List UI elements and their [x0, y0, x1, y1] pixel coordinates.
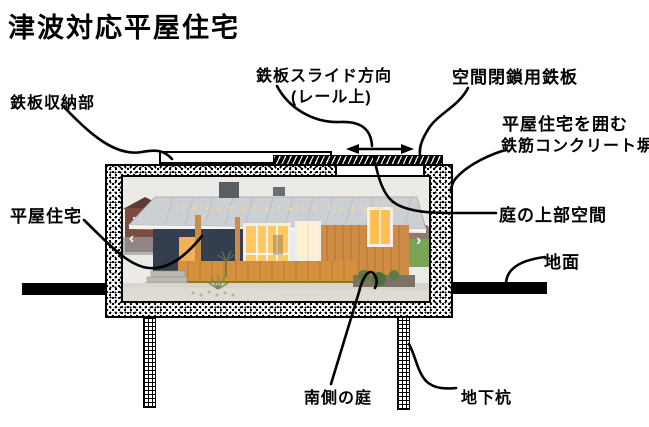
label-house: 平屋住宅 [10, 202, 82, 227]
label-plate-storage: 鉄板収納部 [10, 89, 95, 113]
ground-bar-right [452, 282, 547, 294]
leader-plate-storage [62, 105, 172, 159]
label-south-garden: 南側の庭 [304, 384, 372, 408]
house-photo-illustration: ‹ › [123, 177, 429, 301]
underground-pile-right [397, 317, 410, 410]
leader-ground [506, 257, 545, 283]
carousel-next-icon: › [416, 232, 421, 249]
ground-bar-left [22, 283, 105, 295]
label-ground: 地面 [544, 248, 580, 273]
lit-window [367, 207, 393, 247]
label-closure-plate: 空間閉鎖用鉄板 [452, 63, 578, 88]
label-fence-line2: 鉄筋コンクリート塀 [501, 132, 649, 156]
label-slide-direction-rail: (レール上) [291, 83, 372, 107]
label-underground-pile: 地下杭 [461, 384, 512, 408]
page-title: 津波対応平屋住宅 [8, 6, 240, 45]
tsunami-house-diagram: 津波対応平屋住宅 [0, 0, 649, 427]
label-garden-upper-space: 庭の上部空間 [499, 201, 607, 226]
closure-steel-plate-rect [273, 155, 443, 165]
leader-fence [451, 151, 502, 191]
carousel-prev-icon: ‹ [129, 230, 134, 247]
leader-underground-pile [409, 344, 456, 388]
underground-pile-left [143, 317, 156, 408]
house-photo: ‹ › [121, 175, 431, 303]
leader-closure-plate [420, 88, 468, 155]
slide-direction-arrow [346, 144, 414, 154]
